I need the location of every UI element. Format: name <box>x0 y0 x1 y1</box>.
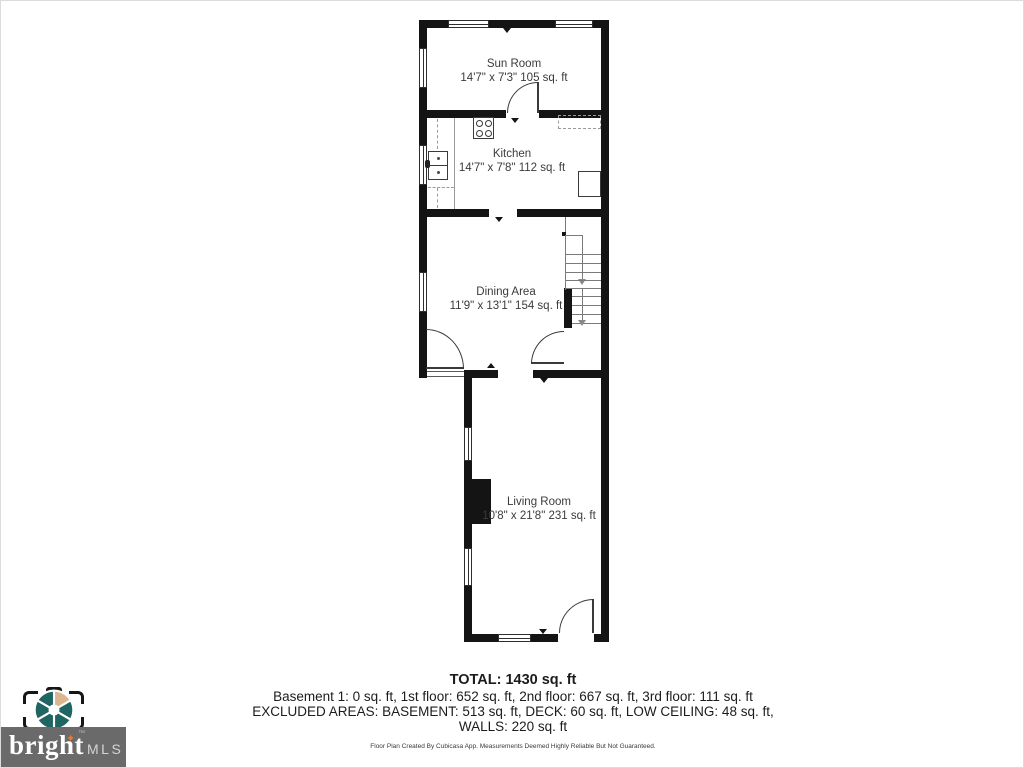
cabinet-dashed-line <box>437 119 438 149</box>
room-dimensions: 11'9" x 13'1" 154 sq. ft <box>450 299 563 313</box>
stair-landing-line <box>565 288 601 289</box>
opening-tick-icon <box>539 629 547 634</box>
door-swing <box>507 82 538 113</box>
opening-tick-icon <box>511 118 519 123</box>
floor-areas: Basement 1: 0 sq. ft, 1st floor: 652 sq.… <box>1 689 1024 704</box>
opening-tick-icon <box>487 363 495 368</box>
window <box>555 20 593 28</box>
brand-banner: bright MLS <box>1 727 126 768</box>
door-leaf <box>537 82 539 113</box>
door-leaf <box>426 367 464 369</box>
brand-star-icon: ✦ <box>66 732 75 745</box>
stair-tread <box>572 314 601 315</box>
stair-line <box>565 235 583 236</box>
room-label-living-room: Living Room 10'8" x 21'8" 231 sq. ft <box>482 495 596 523</box>
window <box>498 634 531 642</box>
door-leaf <box>531 362 564 364</box>
walls-area: WALLS: 220 sq. ft <box>1 719 1024 734</box>
cabinet-dashed-line <box>437 188 438 208</box>
room-dimensions: 14'7" x 7'8" 112 sq. ft <box>459 161 565 175</box>
stair-tread <box>572 296 601 297</box>
counter-appliance <box>578 171 601 197</box>
stair-direction-line <box>582 289 583 322</box>
total-area: TOTAL: 1430 sq. ft <box>1 672 1024 688</box>
window <box>419 48 427 88</box>
window <box>464 548 472 586</box>
opening-tick-icon <box>495 217 503 222</box>
window <box>464 427 472 461</box>
room-name: Sun Room <box>460 57 567 71</box>
opening-tick-icon <box>503 28 511 33</box>
floor-plan-page: Sun Room 14'7" x 7'3" 105 sq. ft Kitchen… <box>0 0 1024 768</box>
camera-aperture-icon <box>33 689 75 731</box>
room-name: Dining Area <box>450 285 563 299</box>
staircase <box>561 215 609 330</box>
room-label-sun-room: Sun Room 14'7" x 7'3" 105 sq. ft <box>460 57 567 85</box>
sink-icon <box>428 151 448 180</box>
door-swing <box>426 329 464 369</box>
door-leaf <box>592 599 594 633</box>
threshold <box>427 371 464 377</box>
room-name: Kitchen <box>459 147 565 161</box>
disclaimer: Floor Plan Created By Cubicasa App. Meas… <box>1 743 1024 750</box>
room-name: Living Room <box>482 495 596 509</box>
faucet-icon <box>425 160 430 168</box>
room-label-kitchen: Kitchen 14'7" x 7'8" 112 sq. ft <box>459 147 565 175</box>
window <box>419 272 427 312</box>
door-swing <box>531 331 564 364</box>
opening <box>489 208 517 218</box>
stair-tread <box>572 323 601 324</box>
stair-down-arrow-icon <box>578 320 586 326</box>
opening <box>498 369 533 379</box>
room-dimensions: 14'7" x 7'3" 105 sq. ft <box>460 71 567 85</box>
brand-suffix: MLS <box>87 741 123 757</box>
stove-icon <box>473 117 494 139</box>
stair-tread <box>566 280 601 281</box>
opening-tick-icon <box>540 378 548 383</box>
door-opening <box>558 633 594 643</box>
window <box>448 20 489 28</box>
trademark-symbol: ™ <box>78 730 85 737</box>
cabinet-dashed-line <box>428 187 454 188</box>
stair-direction-line <box>582 235 583 281</box>
excluded-areas: EXCLUDED AREAS: BASEMENT: 513 sq. ft, DE… <box>1 704 1024 719</box>
counter-edge <box>454 118 455 209</box>
floor-plan: Sun Room 14'7" x 7'3" 105 sq. ft Kitchen… <box>1 1 1024 661</box>
stair-tread <box>566 263 601 264</box>
upper-cabinet-dashed <box>558 115 601 129</box>
stair-tread <box>566 254 601 255</box>
room-label-dining-area: Dining Area 11'9" x 13'1" 154 sq. ft <box>450 285 563 313</box>
door-swing <box>559 599 594 633</box>
stair-tread <box>572 305 601 306</box>
stair-tread <box>566 272 601 273</box>
room-dimensions: 10'8" x 21'8" 231 sq. ft <box>482 509 596 523</box>
